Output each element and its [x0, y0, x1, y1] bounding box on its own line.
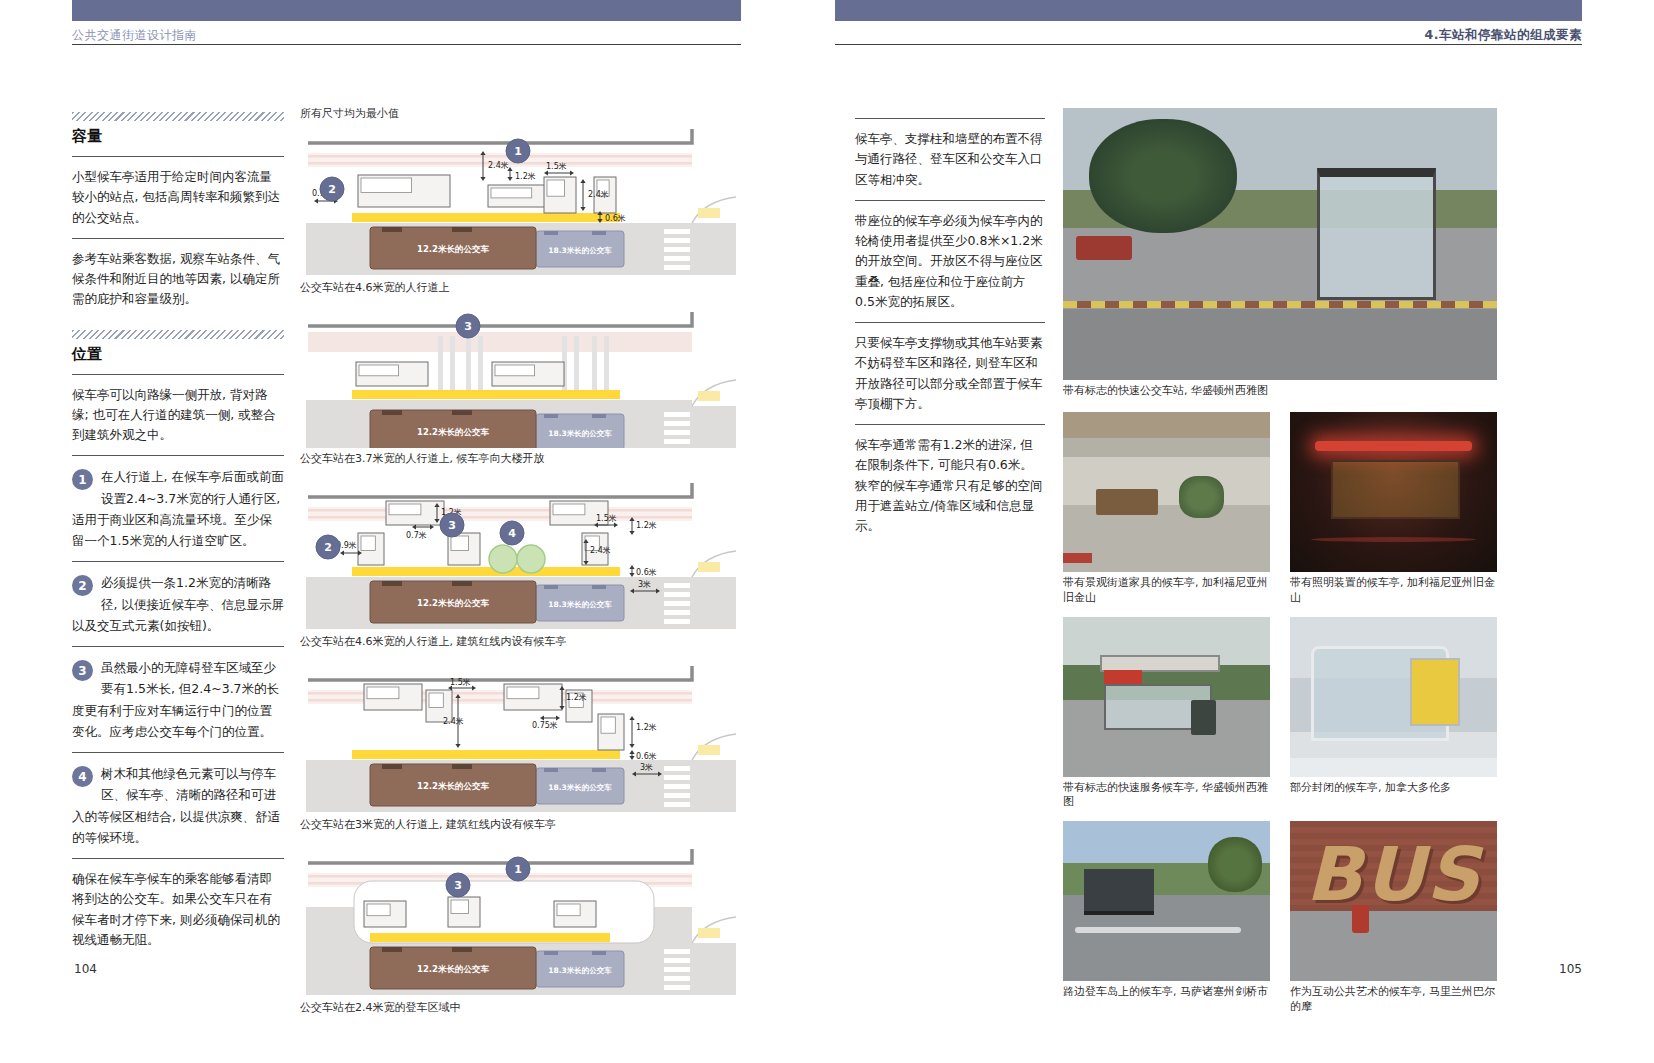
trash-bin-shape: [1191, 700, 1216, 735]
dimension-label: 0.6米: [636, 752, 657, 761]
left-text-column: 容量 小型候车亭适用于给定时间内客流量较小的站点, 包括高周转率和频繁到达的公交…: [72, 112, 284, 958]
page-number-right: 105: [835, 962, 1582, 976]
dimension-label: 0.75米: [532, 721, 558, 730]
item-number-badge: 3: [72, 660, 93, 681]
photo-rapid-service-shelter-seattle: [1063, 617, 1270, 777]
svg-text:3: 3: [454, 879, 462, 892]
running-head-left: 公共交通街道设计指南: [72, 27, 197, 44]
snow-ground-shape: [1290, 758, 1497, 777]
numbered-item-3: 3 虽然最小的无障碍登车区域至少要有1.5米长, 但2.4~3.7米的长度更有利…: [72, 657, 284, 742]
shelter-glow-shape: [1331, 460, 1459, 518]
item-text: 虽然最小的无障碍登车区域至少要有1.5米长, 但2.4~3.7米的长度更有利于应…: [72, 660, 279, 739]
svg-text:12.2米长的公交车: 12.2米长的公交车: [417, 427, 489, 437]
running-head-right: 4.车站和停靠站的组成要素: [835, 27, 1582, 44]
paragraph: 小型候车亭适用于给定时间内客流量较小的站点, 包括高周转率和频繁到达的公交站点。: [72, 167, 284, 228]
item-number-badge: 2: [72, 575, 93, 596]
item-number-badge: 1: [72, 469, 93, 490]
shelter-canopy-shape: [1084, 869, 1154, 915]
bus-letters-art: BUS: [1302, 834, 1484, 920]
diagram-bus-stop-3.7m-sidewalk: 18.3米长的公交车12.2米长的公交车3: [300, 310, 741, 448]
photo-caption: 带有标志的快速服务候车亭, 华盛顿州西雅图: [1063, 781, 1270, 810]
svg-text:4: 4: [508, 527, 516, 540]
svg-text:12.2米长的公交车: 12.2米长的公交车: [417, 964, 489, 974]
car-shape: [1076, 236, 1132, 260]
tree-shape: [1089, 119, 1237, 233]
svg-text:18.3米长的公交车: 18.3米长的公交车: [548, 600, 612, 609]
diagram-caption: 公交车站在3米宽的人行道上, 建筑红线内设有候车亭: [300, 817, 741, 832]
building-shape: [1063, 412, 1270, 438]
tree-shape: [1208, 837, 1262, 891]
svg-text:18.3米长的公交车: 18.3米长的公交车: [548, 783, 612, 792]
photo-street-furniture-sf: [1063, 412, 1270, 572]
svg-text:1: 1: [514, 145, 522, 158]
photo-boarding-island-cambridge: [1063, 821, 1270, 981]
bus-shelter-shape: [1317, 168, 1436, 300]
photo-caption: 带有标志的快速公交车站, 华盛顿州西雅图: [1063, 384, 1497, 398]
divider: [72, 858, 284, 859]
divider: [72, 646, 284, 647]
photo-caption: 作为互动公共艺术的候车亭, 马里兰州巴尔的摩: [1290, 985, 1497, 1014]
diagram-bus-stop-2.4m-boarding-area: 18.3米长的公交车12.2米长的公交车13: [300, 847, 741, 997]
divider: [72, 455, 284, 456]
divider: [72, 374, 284, 375]
photo-cell: 带有照明装置的候车亭, 加利福尼亚州旧金山: [1290, 412, 1497, 605]
ad-panel-shape: [1410, 658, 1460, 726]
photo-caption: 部分封闭的候车亭, 加拿大多伦多: [1290, 781, 1497, 795]
paragraph: 候车亭可以向路缘一侧开放, 背对路缘; 也可在人行道的建筑一侧, 或整合到建筑外…: [72, 385, 284, 446]
diagram-note: 所有尺寸均为最小值: [300, 106, 741, 121]
diagram-caption: 公交车站在3.7米宽的人行道上, 候车亭向大楼开放: [300, 451, 741, 466]
svg-text:12.2米长的公交车: 12.2米长的公交车: [417, 244, 489, 254]
top-band-left: [72, 0, 741, 21]
item-number-badge: 4: [72, 766, 93, 787]
photo-grid: 带有景观街道家具的候车亭, 加利福尼亚州旧金山 带有照明装置的候车亭, 加利福尼…: [1063, 412, 1497, 1014]
dimension-label: 1.2米: [636, 521, 657, 530]
svg-text:3: 3: [448, 519, 456, 532]
diagram-caption: 公交车站在2.4米宽的登车区域中: [300, 1000, 741, 1015]
dimension-label: 1.5米: [596, 514, 617, 523]
dimension-label: 1.2米: [566, 693, 587, 702]
photo-rapid-bus-station-seattle: [1063, 108, 1497, 380]
section-title-location: 位置: [72, 345, 284, 364]
svg-text:18.3米长的公交车: 18.3米长的公交车: [548, 966, 612, 975]
paragraph: 参考车站乘客数据, 观察车站条件、气候条件和附近目的地等因素, 以确定所需的庇护…: [72, 249, 284, 310]
svg-text:2: 2: [324, 541, 332, 554]
head-rule-right: [835, 44, 1582, 45]
photo-enclosed-shelter-toronto: [1290, 617, 1497, 777]
planter-shape: [1179, 476, 1225, 518]
item-text: 在人行道上, 在候车亭后面或前面设置2.4~3.7米宽的行人通行区, 适用于商业…: [72, 469, 284, 548]
photo-caption: 带有景观街道家具的候车亭, 加利福尼亚州旧金山: [1063, 576, 1270, 605]
dimension-label: 1.5米: [546, 162, 567, 171]
svg-text:12.2米长的公交车: 12.2米长的公交车: [417, 781, 489, 791]
dimension-label: 2.4米: [588, 190, 609, 199]
photo-lit-shelter-sf: [1290, 412, 1497, 572]
photo-caption: 路边登车岛上的候车亭, 马萨诸塞州剑桥市: [1063, 985, 1270, 999]
dimension-label: 0.7米: [406, 531, 427, 540]
head-rule-left: [72, 44, 741, 45]
diagram-bus-stop-4.6m-setback-shelter: 18.3米长的公交车12.2米长的公交车1.2米0.7米0.9米1.5米1.2米…: [300, 481, 741, 631]
photo-cell: 带有景观街道家具的候车亭, 加利福尼亚州旧金山: [1063, 412, 1270, 605]
diagram-bus-stop-4.6m-sidewalk: 18.3米长的公交车12.2米长的公交车2.4米1.2米1.5米2.4米0.9米…: [300, 127, 741, 277]
person-shape: [1352, 905, 1369, 934]
divider: [72, 752, 284, 753]
dimension-label: 3米: [640, 763, 653, 772]
diagram-caption: 公交车站在4.6米宽的人行道上, 建筑红线内设有候车亭: [300, 634, 741, 649]
dimension-label: 1.5米: [450, 678, 471, 687]
divider: [855, 424, 1045, 425]
dimension-label: 2.4米: [443, 717, 464, 726]
reflection-shape: [1311, 537, 1477, 542]
dimension-label: 2.4米: [488, 161, 509, 170]
island-curb-shape: [1075, 927, 1241, 933]
dimension-label: 3米: [638, 580, 651, 589]
divider: [72, 238, 284, 239]
curb-stripe-shape: [1063, 301, 1497, 308]
item-text: 必须提供一条1.2米宽的清晰路径, 以便接近候车亭、信息显示屏以及交互式元素(如…: [72, 575, 284, 633]
red-curb-shape: [1063, 553, 1092, 563]
divider: [855, 322, 1045, 323]
dimension-label: 2.4米: [590, 546, 611, 555]
page-number-left: 104: [74, 962, 97, 976]
paragraph: 只要候车亭支撑物或其他车站要素不妨碍登车区和路径, 则登车区和开放路径可以部分或…: [855, 333, 1045, 414]
photo-bus-art-baltimore: BUS: [1290, 821, 1497, 981]
diagram-caption: 公交车站在4.6米宽的人行道上: [300, 280, 741, 295]
photo-column: 带有标志的快速公交车站, 华盛顿州西雅图 带有景观街道家具的候车亭, 加利福尼亚…: [1063, 108, 1497, 1014]
svg-text:18.3米长的公交车: 18.3米长的公交车: [548, 429, 612, 438]
section-title-capacity: 容量: [72, 127, 284, 146]
photo-cell: 路边登车岛上的候车亭, 马萨诸塞州剑桥市: [1063, 821, 1270, 1014]
numbered-item-1: 1 在人行道上, 在候车亭后面或前面设置2.4~3.7米宽的行人通行区, 适用于…: [72, 466, 284, 551]
divider: [72, 156, 284, 157]
photo-cell: BUS 作为互动公共艺术的候车亭, 马里兰州巴尔的摩: [1290, 821, 1497, 1014]
paragraph: 候车亭通常需有1.2米的进深, 但在限制条件下, 可能只有0.6米。狭窄的候车亭…: [855, 435, 1045, 536]
neon-light-shape: [1315, 441, 1472, 451]
photo-cell: 带有标志的快速服务候车亭, 华盛顿州西雅图: [1063, 617, 1270, 810]
item-text: 树木和其他绿色元素可以与停车区、候车亭、清晰的路径和可进入的等候区相结合, 以提…: [72, 766, 280, 845]
paragraph: 候车亭、支撑柱和墙壁的布置不得与通行路径、登车区和公交车入口区等相冲突。: [855, 129, 1045, 190]
diagram-bus-stop-3m-setback-shelter: 18.3米长的公交车12.2米长的公交车1.5米2.4米1.2米0.75米1.2…: [300, 664, 741, 814]
svg-text:12.2米长的公交车: 12.2米长的公交车: [417, 598, 489, 608]
dimension-label: 0.6米: [605, 214, 626, 223]
numbered-item-2: 2 必须提供一条1.2米宽的清晰路径, 以便接近候车亭、信息显示屏以及交互式元素…: [72, 572, 284, 636]
closing-paragraph: 确保在候车亭候车的乘客能够看清即将到达的公交车。如果公交车只在有候车者时才停下来…: [72, 869, 284, 950]
dimension-label: 1.2米: [515, 172, 536, 181]
numbered-item-4: 4 树木和其他绿色元素可以与停车区、候车亭、清晰的路径和可进入的等候区相结合, …: [72, 763, 284, 848]
divider: [72, 561, 284, 562]
svg-text:3: 3: [464, 320, 472, 333]
divider: [855, 118, 1045, 119]
svg-text:1: 1: [514, 863, 522, 876]
svg-text:18.3米长的公交车: 18.3米长的公交车: [548, 246, 612, 255]
photo-cell: 部分封闭的候车亭, 加拿大多伦多: [1290, 617, 1497, 810]
top-band-right: [835, 0, 1582, 21]
diagram-column: 所有尺寸均为最小值 18.3米长的公交车12.2米长的公交车2.4米1.2米1.…: [300, 106, 741, 1030]
red-sign-shape: [1104, 670, 1141, 684]
section-divider-hatch: [72, 112, 284, 121]
svg-text:2: 2: [328, 183, 336, 196]
bench-shape: [1096, 489, 1158, 515]
right-text-column: 候车亭、支撑柱和墙壁的布置不得与通行路径、登车区和公交车入口区等相冲突。 带座位…: [855, 108, 1045, 544]
dimension-label: 0.6米: [636, 568, 657, 577]
paragraph: 带座位的候车亭必须为候车亭内的轮椅使用者提供至少0.8米×1.2米的开放空间。开…: [855, 211, 1045, 312]
divider: [855, 200, 1045, 201]
section-divider-hatch: [72, 330, 284, 339]
photo-caption: 带有照明装置的候车亭, 加利福尼亚州旧金山: [1290, 576, 1497, 605]
dimension-label: 1.2米: [636, 723, 657, 732]
